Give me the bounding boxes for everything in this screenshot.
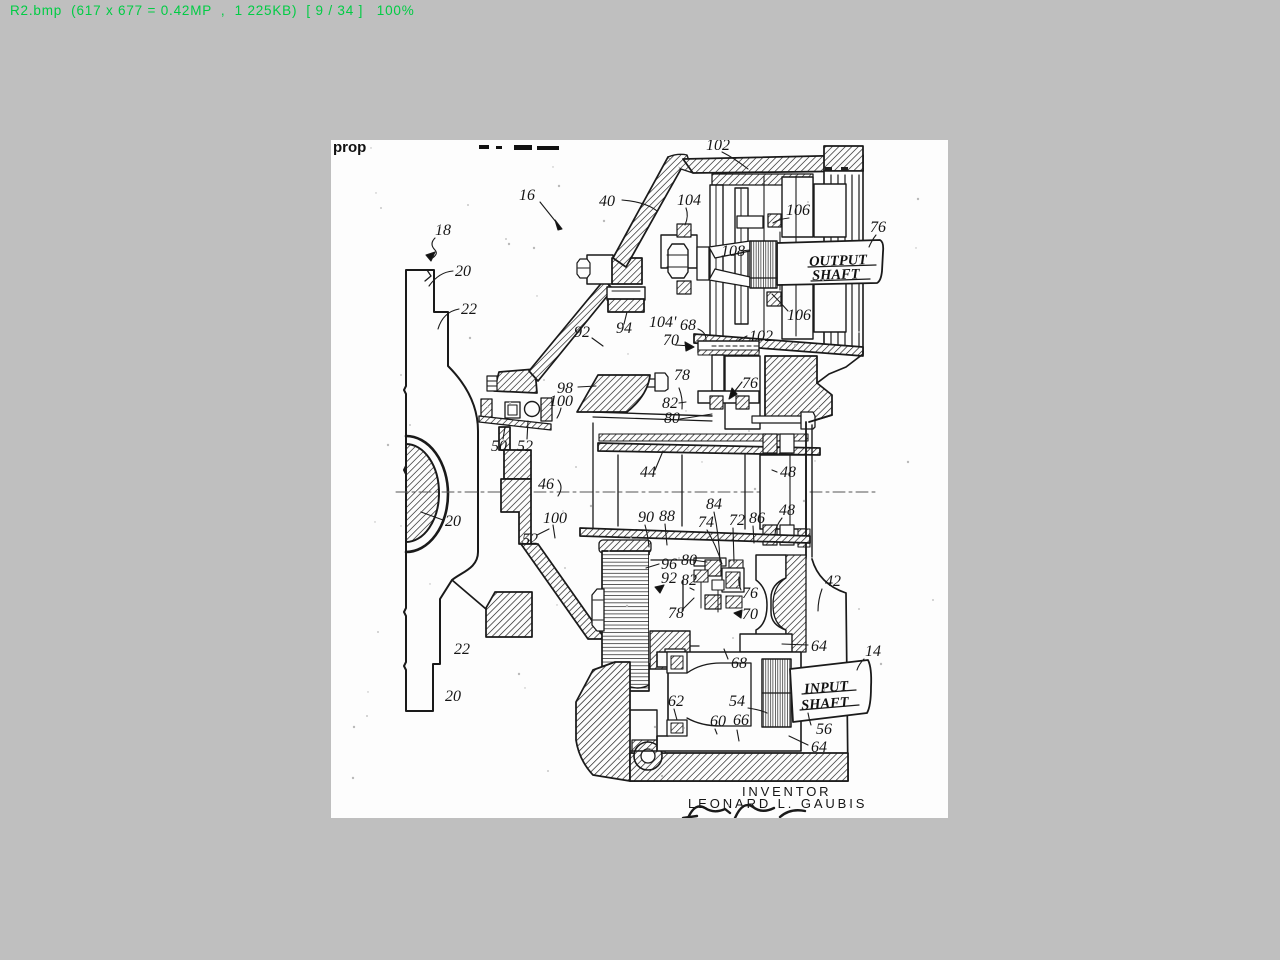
svg-text:68: 68 [680,317,696,334]
svg-text:76: 76 [742,585,758,602]
svg-text:54: 54 [729,693,745,710]
svg-text:prop: prop [333,140,366,156]
svg-text:102: 102 [749,328,773,345]
svg-text:64: 64 [811,739,827,756]
svg-text:LEONARD L. GAUBIS: LEONARD L. GAUBIS [688,796,867,811]
svg-text:76: 76 [870,219,886,236]
svg-text:20: 20 [445,513,461,530]
svg-text:80: 80 [664,410,680,427]
svg-text:56: 56 [816,721,832,738]
svg-text:50: 50 [491,438,507,455]
svg-text:22: 22 [461,301,477,318]
svg-text:SHAFT: SHAFT [801,694,851,713]
svg-text:102: 102 [706,140,730,154]
svg-text:68: 68 [731,655,747,672]
svg-text:60: 60 [710,713,726,730]
svg-text:44: 44 [640,464,656,481]
svg-text:88: 88 [659,508,675,525]
svg-text:14: 14 [865,643,881,660]
svg-text:48: 48 [779,502,795,519]
svg-text:82: 82 [681,572,697,589]
svg-text:20: 20 [445,688,461,705]
svg-text:18: 18 [435,222,451,239]
svg-text:52: 52 [517,438,533,455]
svg-text:90: 90 [638,509,654,526]
svg-text:22: 22 [454,641,470,658]
svg-text:16: 16 [519,187,535,204]
svg-text:76: 76 [742,375,758,392]
svg-text:48: 48 [780,464,796,481]
svg-text:64: 64 [811,638,827,655]
svg-text:104': 104' [649,314,677,331]
svg-text:40: 40 [599,193,615,210]
svg-text:78: 78 [668,605,684,622]
svg-text:52: 52 [522,531,538,548]
svg-text:20: 20 [455,263,471,280]
svg-text:70: 70 [663,332,679,349]
svg-text:92: 92 [574,324,590,341]
svg-text:84: 84 [706,496,722,513]
svg-text:100: 100 [543,510,567,527]
svg-text:66: 66 [733,712,749,729]
svg-text:70: 70 [742,606,758,623]
svg-text:62: 62 [668,693,684,710]
svg-text:72: 72 [729,512,745,529]
svg-text:104: 104 [677,192,701,209]
svg-text:42: 42 [825,573,841,590]
svg-text:106: 106 [787,307,811,324]
svg-text:86: 86 [749,510,765,527]
svg-text:92: 92 [661,570,677,587]
svg-text:46: 46 [538,476,554,493]
svg-text:74: 74 [698,514,714,531]
svg-text:78: 78 [674,367,690,384]
svg-text:106: 106 [786,202,810,219]
